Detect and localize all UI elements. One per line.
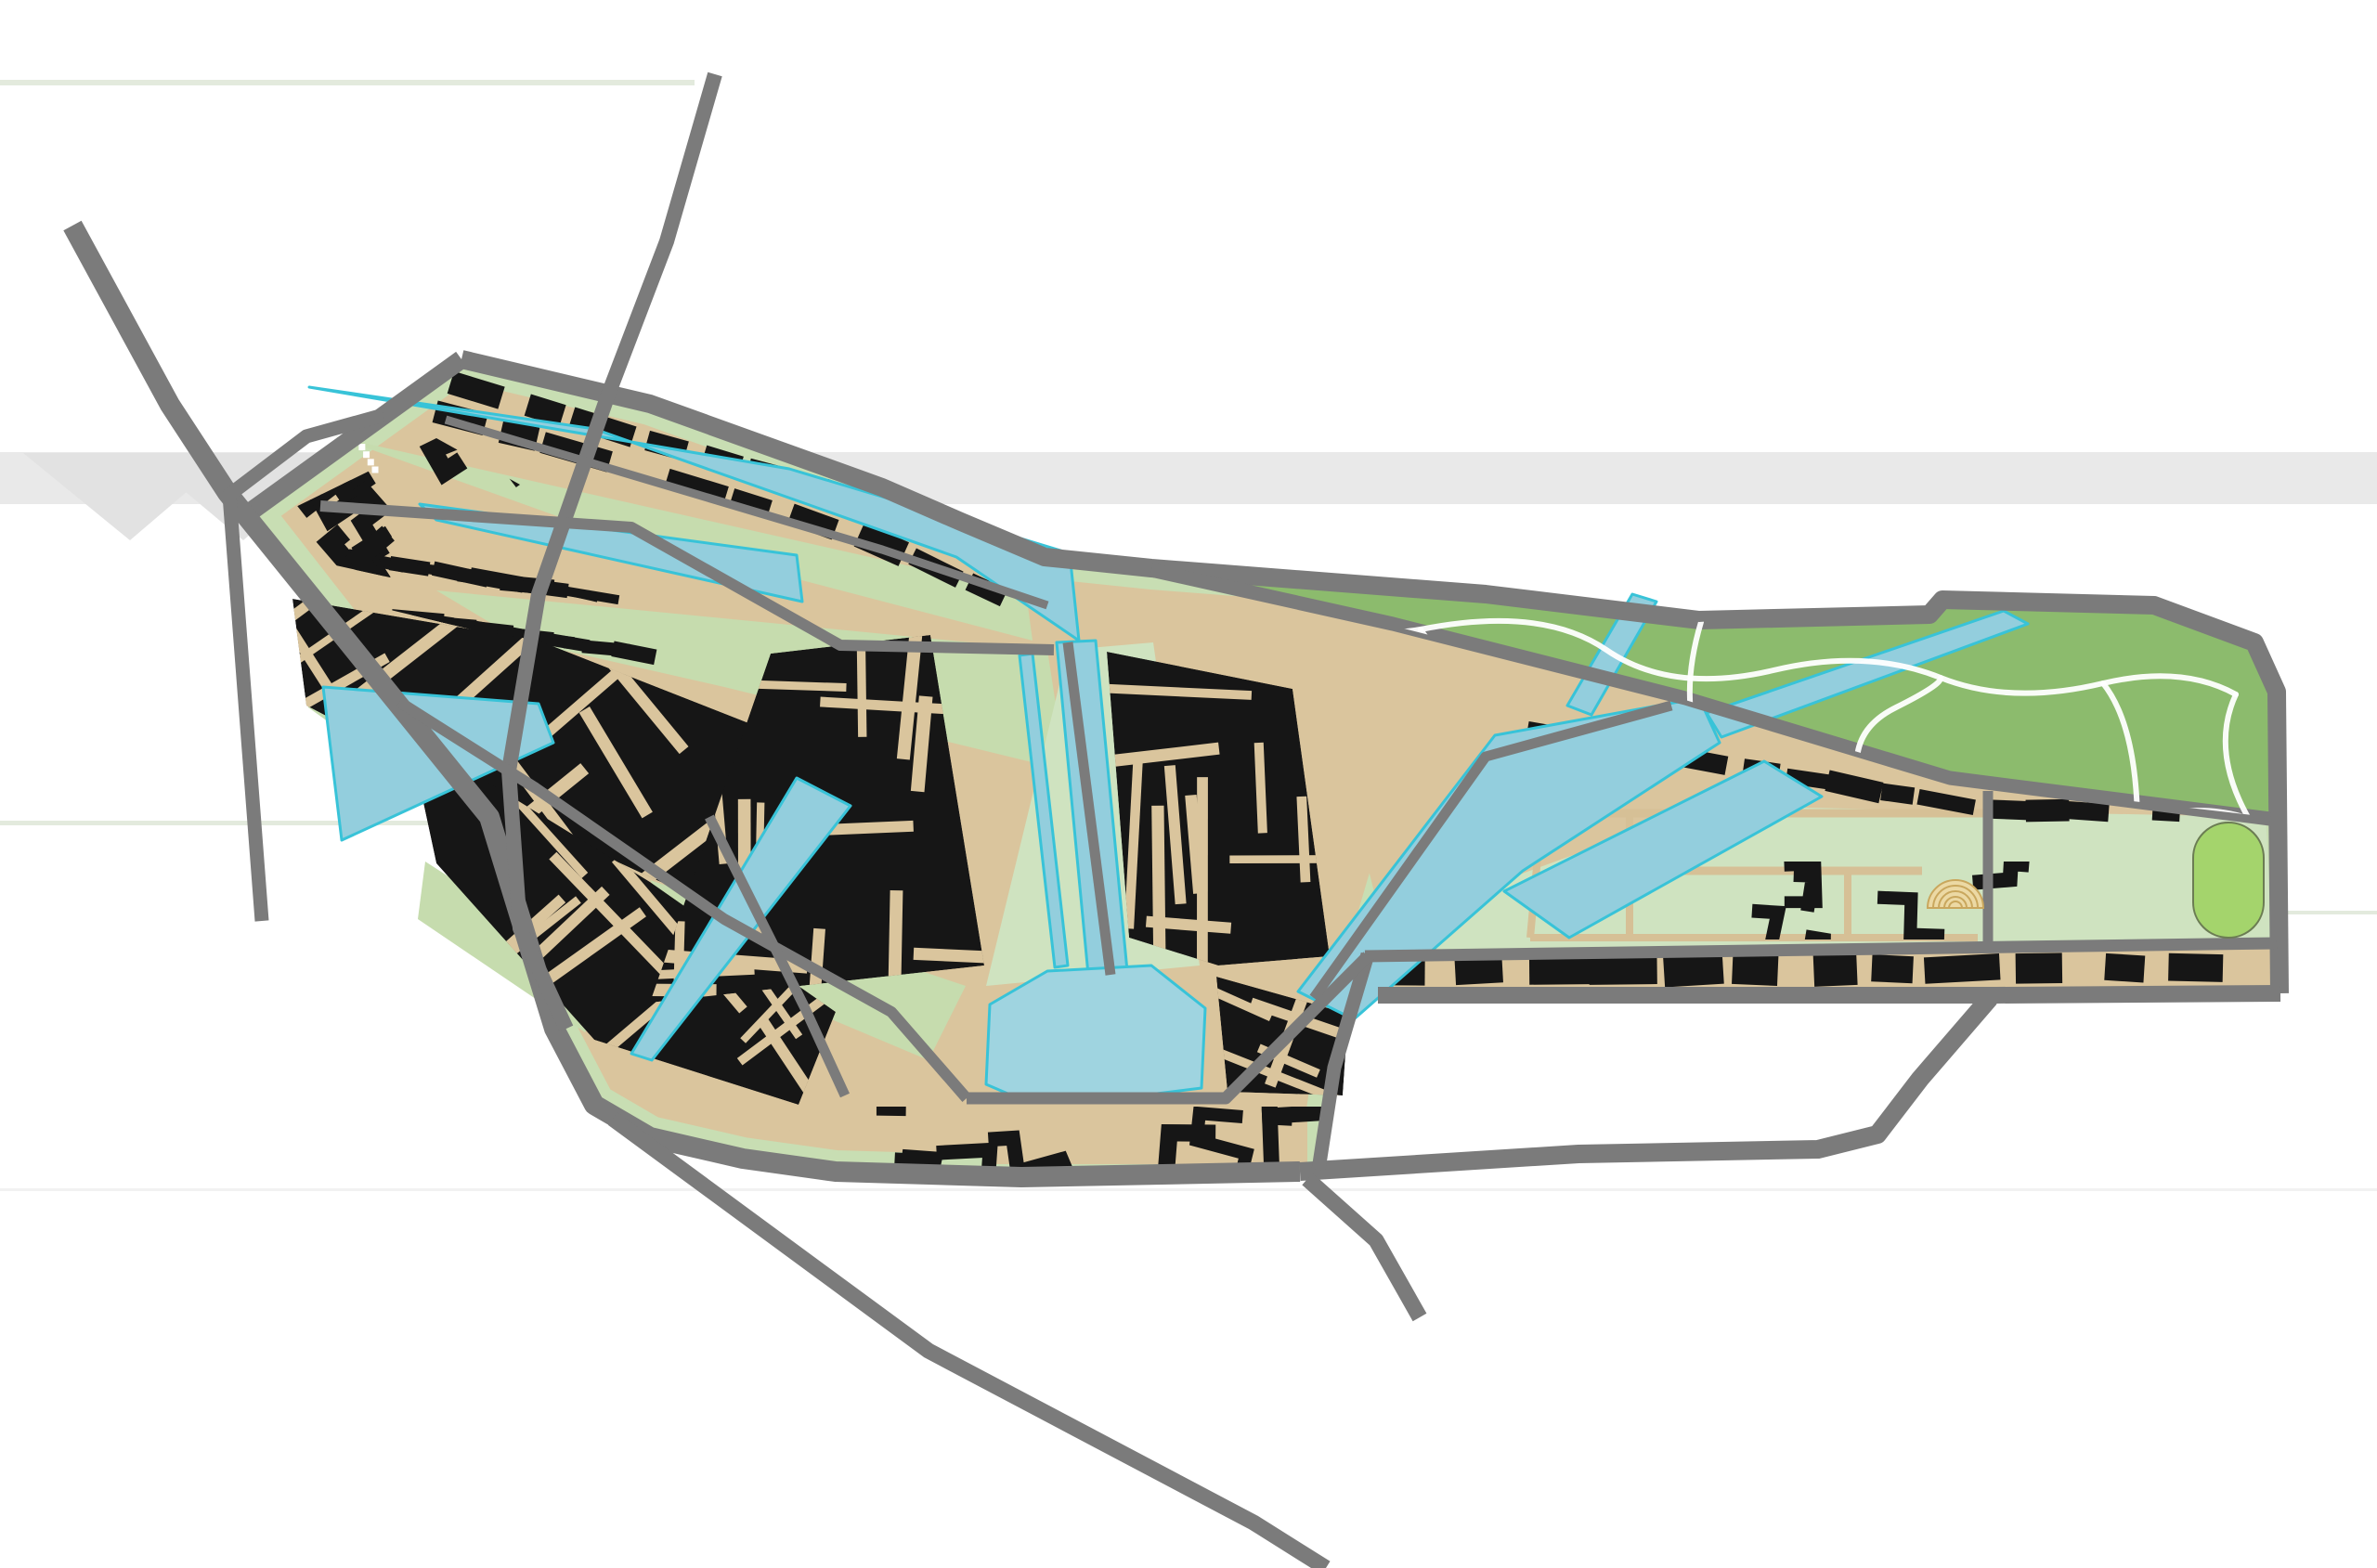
road-dead-end-south <box>1307 1179 1420 1317</box>
faint-dotted-line-bottom <box>0 1188 2377 1191</box>
balcony-dot <box>372 467 379 473</box>
balcony-dot <box>358 444 365 450</box>
balcony-dot <box>368 459 374 465</box>
balcony-dot <box>363 451 370 458</box>
road-bottom-east <box>1300 998 1990 1172</box>
sports-oval <box>2193 823 2264 938</box>
strip-bottom-road <box>1378 993 2280 995</box>
faint-line-right <box>2277 911 2377 914</box>
master-plan-canvas <box>0 0 2377 1568</box>
south-strip-tan-patch <box>984 1107 1307 1164</box>
road-south-diagonal <box>613 1119 1326 1568</box>
faint-line-top <box>0 80 695 85</box>
master-plan-map <box>0 0 2377 1568</box>
sports-field <box>2193 823 2264 938</box>
